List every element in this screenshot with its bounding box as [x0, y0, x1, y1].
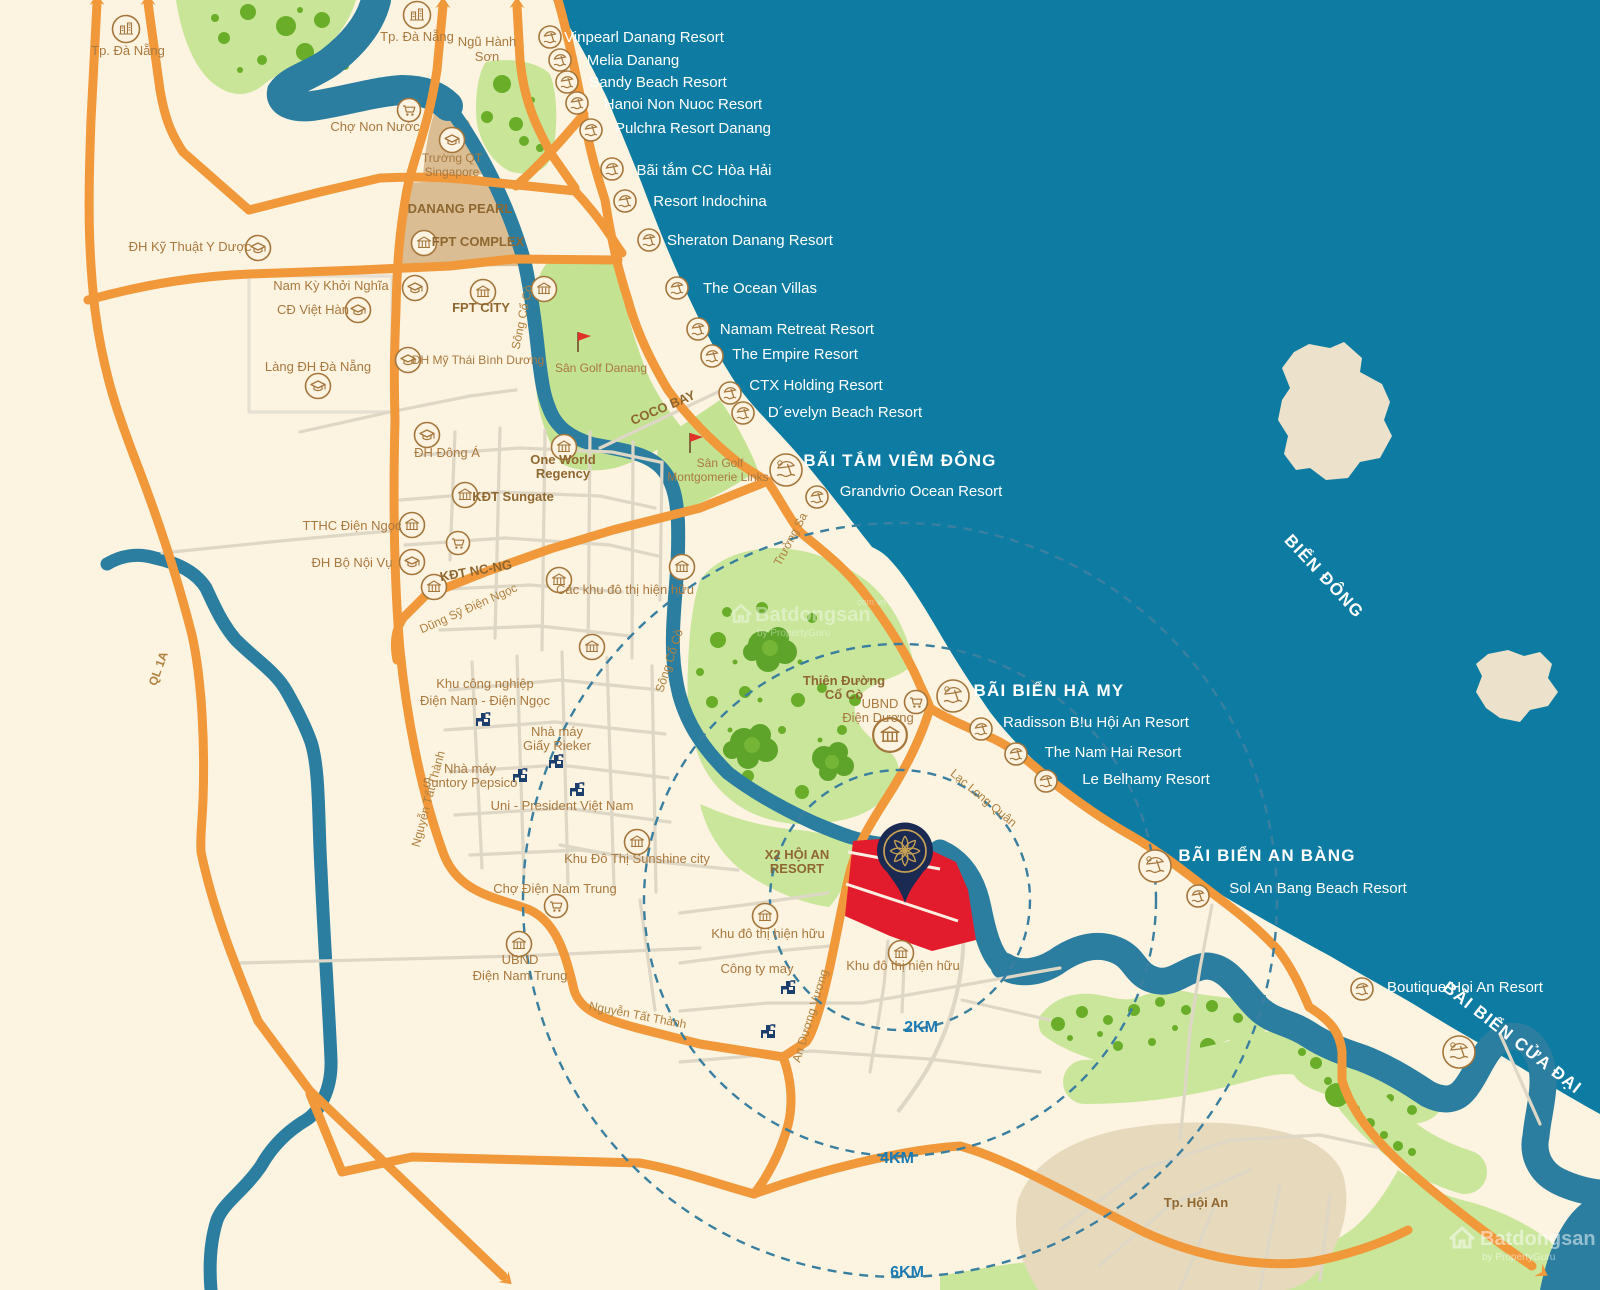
svg-text:Tp. Đà Nẵng: Tp. Đà Nẵng	[380, 29, 454, 44]
svg-text:KĐT Sungate: KĐT Sungate	[472, 489, 554, 504]
svg-text:X2 HỘI AN: X2 HỘI AN	[765, 847, 830, 862]
svg-text:Pulchra Resort Danang: Pulchra Resort Danang	[615, 120, 771, 137]
svg-text:The Empire Resort: The Empire Resort	[732, 346, 859, 363]
svg-text:2KM: 2KM	[904, 1019, 938, 1036]
svg-text:Grandvrio Ocean Resort: Grandvrio Ocean Resort	[840, 483, 1003, 500]
svg-text:by PropertyGuru: by PropertyGuru	[757, 628, 830, 639]
svg-text:Tp. Hội An: Tp. Hội An	[1164, 1195, 1229, 1210]
svg-text:Chợ Non Nước: Chợ Non Nước	[330, 119, 420, 134]
svg-text:BÃI TẮM VIÊM ĐÔNG: BÃI TẮM VIÊM ĐÔNG	[803, 450, 996, 470]
svg-text:Thiên Đường: Thiên Đường	[803, 673, 885, 688]
svg-text:Khu công nghiệp: Khu công nghiệp	[436, 676, 534, 691]
svg-text:UBND: UBND	[862, 696, 899, 711]
svg-text:Montgomerie Links: Montgomerie Links	[667, 470, 768, 484]
svg-text:Sandy Beach Resort: Sandy Beach Resort	[589, 74, 727, 91]
svg-text:BÃI BIỂN AN BÀNG: BÃI BIỂN AN BÀNG	[1178, 845, 1355, 865]
svg-text:RESORT: RESORT	[770, 861, 824, 876]
svg-text:Ngũ Hành: Ngũ Hành	[458, 34, 517, 49]
svg-text:Uni - President Việt Nam: Uni - President Việt Nam	[491, 798, 634, 813]
svg-text:Regency: Regency	[536, 466, 591, 481]
svg-text:CTX Holding Resort: CTX Holding Resort	[749, 377, 883, 394]
svg-text:Radisson B!u Hội An Resort: Radisson B!u Hội An Resort	[1003, 714, 1190, 731]
svg-text:The Ocean Villas: The Ocean Villas	[703, 280, 817, 297]
svg-text:Le Belhamy Resort: Le Belhamy Resort	[1082, 771, 1210, 788]
svg-text:Chợ Điện Nam Trung: Chợ Điện Nam Trung	[493, 881, 616, 896]
svg-text:Giấy Rieker: Giấy Rieker	[523, 738, 592, 753]
svg-text:Resort Indochina: Resort Indochina	[653, 193, 767, 210]
svg-text:CĐ Việt Hàn: CĐ Việt Hàn	[277, 302, 349, 317]
svg-text:Sân Golf Danang: Sân Golf Danang	[555, 361, 647, 375]
svg-text:One World: One World	[530, 452, 596, 467]
svg-text:BÃI BIỂN HÀ MY: BÃI BIỂN HÀ MY	[974, 680, 1125, 700]
svg-text:Bãi tắm CC Hòa Hải: Bãi tắm CC Hòa Hải	[636, 162, 771, 179]
svg-text:6KM: 6KM	[890, 1264, 924, 1281]
svg-text:Batdongsan: Batdongsan	[755, 604, 871, 626]
svg-text:Làng ĐH Đà Nẵng: Làng ĐH Đà Nẵng	[265, 359, 371, 374]
svg-text:Khu đô thị hiện hữu: Khu đô thị hiện hữu	[711, 926, 825, 941]
svg-text:FPT CITY: FPT CITY	[452, 300, 510, 315]
svg-text:Sân Golf: Sân Golf	[697, 456, 744, 470]
svg-text:Khu đô thị hiện hữu: Khu đô thị hiện hữu	[846, 958, 960, 973]
svg-text:Nam Kỳ Khởi Nghĩa: Nam Kỳ Khởi Nghĩa	[273, 278, 389, 293]
svg-text:com.vn: com.vn	[857, 597, 886, 607]
svg-text:Hanoi Non Nuoc Resort: Hanoi Non Nuoc Resort	[604, 96, 763, 113]
svg-text:Nhà máy: Nhà máy	[444, 761, 497, 776]
svg-text:Tp. Đà Nẵng: Tp. Đà Nẵng	[91, 43, 165, 58]
svg-text:Các khu đô thị hiện hữu: Các khu đô thị hiện hữu	[556, 582, 694, 597]
svg-text:Sơn: Sơn	[475, 49, 499, 64]
svg-text:D´evelyn Beach Resort: D´evelyn Beach Resort	[768, 404, 923, 421]
svg-text:Batdongsan: Batdongsan	[1480, 1228, 1596, 1250]
svg-text:Điện Nam - Điện Ngọc: Điện Nam - Điện Ngọc	[420, 693, 551, 708]
svg-text:R: R	[902, 847, 909, 857]
svg-text:Trường QT: Trường QT	[422, 151, 483, 165]
svg-text:Sol An Bang Beach Resort: Sol An Bang Beach Resort	[1229, 880, 1407, 897]
svg-text:Khu Đô Thị Sunshine city: Khu Đô Thị Sunshine city	[564, 851, 710, 866]
svg-text:ĐH Kỹ Thuật Y Dược: ĐH Kỹ Thuật Y Dược	[129, 239, 252, 254]
svg-text:UBND: UBND	[502, 952, 539, 967]
svg-text:Melia Danang: Melia Danang	[587, 52, 680, 69]
svg-text:Cổ Cò: Cổ Cò	[825, 687, 863, 702]
svg-text:Điện Nam Trung: Điện Nam Trung	[473, 968, 568, 983]
svg-text:4KM: 4KM	[880, 1150, 914, 1167]
svg-text:Singapore: Singapore	[425, 165, 480, 179]
svg-text:Vinpearl Danang Resort: Vinpearl Danang Resort	[564, 29, 725, 46]
svg-text:FPT COMPLEX: FPT COMPLEX	[432, 234, 525, 249]
svg-text:Namam Retreat Resort: Namam Retreat Resort	[720, 321, 875, 338]
svg-text:Sheraton Danang Resort: Sheraton Danang Resort	[667, 232, 834, 249]
svg-text:by PropertyGuru: by PropertyGuru	[1482, 1252, 1555, 1263]
svg-text:DANANG PEARL: DANANG PEARL	[408, 201, 513, 216]
svg-text:The Nam Hai Resort: The Nam Hai Resort	[1045, 744, 1183, 761]
svg-text:ĐH Mỹ Thái Bình Dương: ĐH Mỹ Thái Bình Dương	[412, 353, 544, 367]
svg-text:Công ty may: Công ty may	[721, 961, 794, 976]
svg-text:TTHC Điện Ngọc: TTHC Điện Ngọc	[303, 518, 402, 533]
svg-text:Nhà máy: Nhà máy	[531, 724, 584, 739]
svg-text:ĐH Bộ Nội Vụ: ĐH Bộ Nội Vụ	[312, 555, 393, 570]
svg-text:Điện Dương: Điện Dương	[842, 710, 913, 725]
svg-text:ĐH Đông Á: ĐH Đông Á	[414, 445, 480, 460]
